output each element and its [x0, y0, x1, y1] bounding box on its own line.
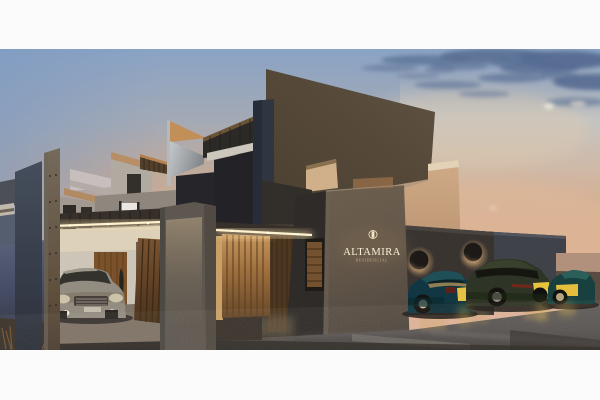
svg-text:ALTAMIRA: ALTAMIRA	[343, 247, 401, 258]
svg-text:RESIDENCIAL: RESIDENCIAL	[356, 259, 389, 263]
